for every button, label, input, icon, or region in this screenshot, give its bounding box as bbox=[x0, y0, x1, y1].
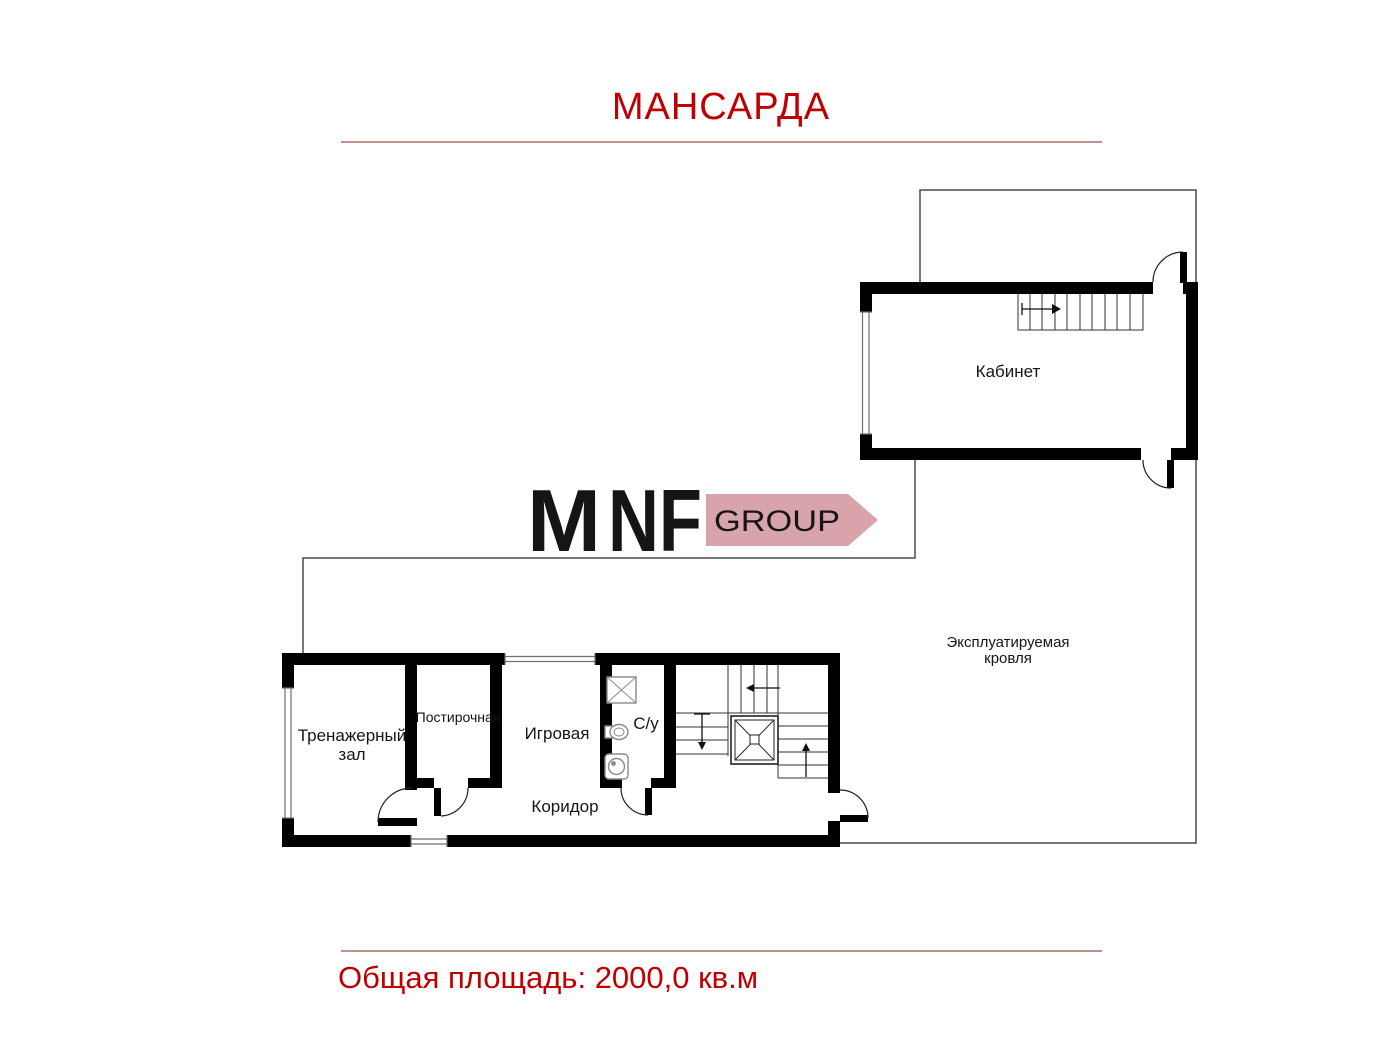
door-swing bbox=[621, 788, 648, 815]
building-wall-bottom bbox=[282, 835, 840, 847]
logo-m-symbol: М bbox=[527, 471, 601, 570]
label-gym-line2: зал bbox=[338, 745, 365, 764]
door-leaf bbox=[840, 815, 868, 822]
door-swing bbox=[1143, 460, 1171, 488]
window-symbol-bottom bbox=[411, 834, 447, 848]
label-laundry: Постирочная bbox=[416, 709, 501, 725]
room-kabinet: Кабинет bbox=[859, 252, 1198, 488]
logo-nfgroup: М NF GROUP bbox=[527, 471, 878, 570]
elevator-shaft bbox=[731, 716, 778, 764]
total-area-text: Общая площадь: 2000,0 кв.м bbox=[338, 960, 758, 996]
kabinet-window-symbol bbox=[859, 312, 873, 434]
label-gym-line1: Тренажерный bbox=[298, 726, 407, 745]
lower-building: Тренажерный зал Постирочная Игровая С/у … bbox=[281, 652, 868, 848]
laundry-door bbox=[434, 788, 468, 816]
toilet-icon bbox=[605, 725, 628, 740]
window-symbol-left bbox=[281, 688, 295, 818]
label-roof: Эксплуатируемая кровля bbox=[946, 634, 1069, 667]
kabinet-staircase bbox=[1018, 294, 1143, 330]
wc-wall-right bbox=[664, 665, 676, 788]
door-leaf bbox=[434, 788, 441, 816]
gym-door bbox=[378, 788, 417, 826]
laundry-door-opening bbox=[434, 778, 468, 788]
label-roof-line1: Эксплуатируемая bbox=[946, 634, 1069, 651]
door-swing bbox=[378, 788, 412, 822]
wc-door-opening bbox=[622, 778, 651, 788]
window-symbol-top bbox=[505, 652, 595, 666]
label-kabinet: Кабинет bbox=[976, 362, 1041, 381]
label-playroom: Игровая bbox=[525, 724, 590, 743]
door-swing bbox=[441, 788, 468, 816]
building-door-opening bbox=[828, 793, 840, 821]
gym-wall-right bbox=[405, 665, 417, 790]
kabinet-wall-right bbox=[1186, 282, 1198, 460]
laundry-wall-right bbox=[490, 665, 502, 788]
door-leaf bbox=[1180, 252, 1187, 283]
logo-nf-text: NF bbox=[608, 471, 702, 570]
central-staircase bbox=[676, 665, 828, 778]
stair-direction-arrow bbox=[1022, 303, 1052, 315]
label-corridor: Коридор bbox=[531, 797, 598, 816]
door-swing bbox=[840, 790, 868, 818]
footer-rule bbox=[341, 950, 1102, 952]
kabinet-door-bottom bbox=[1141, 448, 1174, 488]
wc-door bbox=[621, 788, 652, 815]
door-swing bbox=[1153, 252, 1183, 282]
roof-exit-door bbox=[840, 790, 868, 822]
kabinet-wall-top bbox=[860, 282, 1198, 294]
shower-icon bbox=[607, 677, 636, 703]
label-wc: С/у bbox=[633, 714, 659, 733]
washer-icon bbox=[605, 754, 628, 779]
logo-group-text: GROUP bbox=[714, 505, 840, 538]
stair-arrow-down bbox=[694, 714, 710, 742]
kabinet-door-top bbox=[1153, 252, 1187, 294]
roof-outline-upper bbox=[920, 190, 1196, 282]
door-leaf bbox=[645, 788, 652, 815]
door-leaf bbox=[1167, 460, 1174, 488]
label-roof-line2: кровля bbox=[984, 650, 1032, 667]
floor-plan-canvas: М NF GROUP bbox=[0, 0, 1400, 1050]
door-leaf bbox=[378, 818, 417, 826]
